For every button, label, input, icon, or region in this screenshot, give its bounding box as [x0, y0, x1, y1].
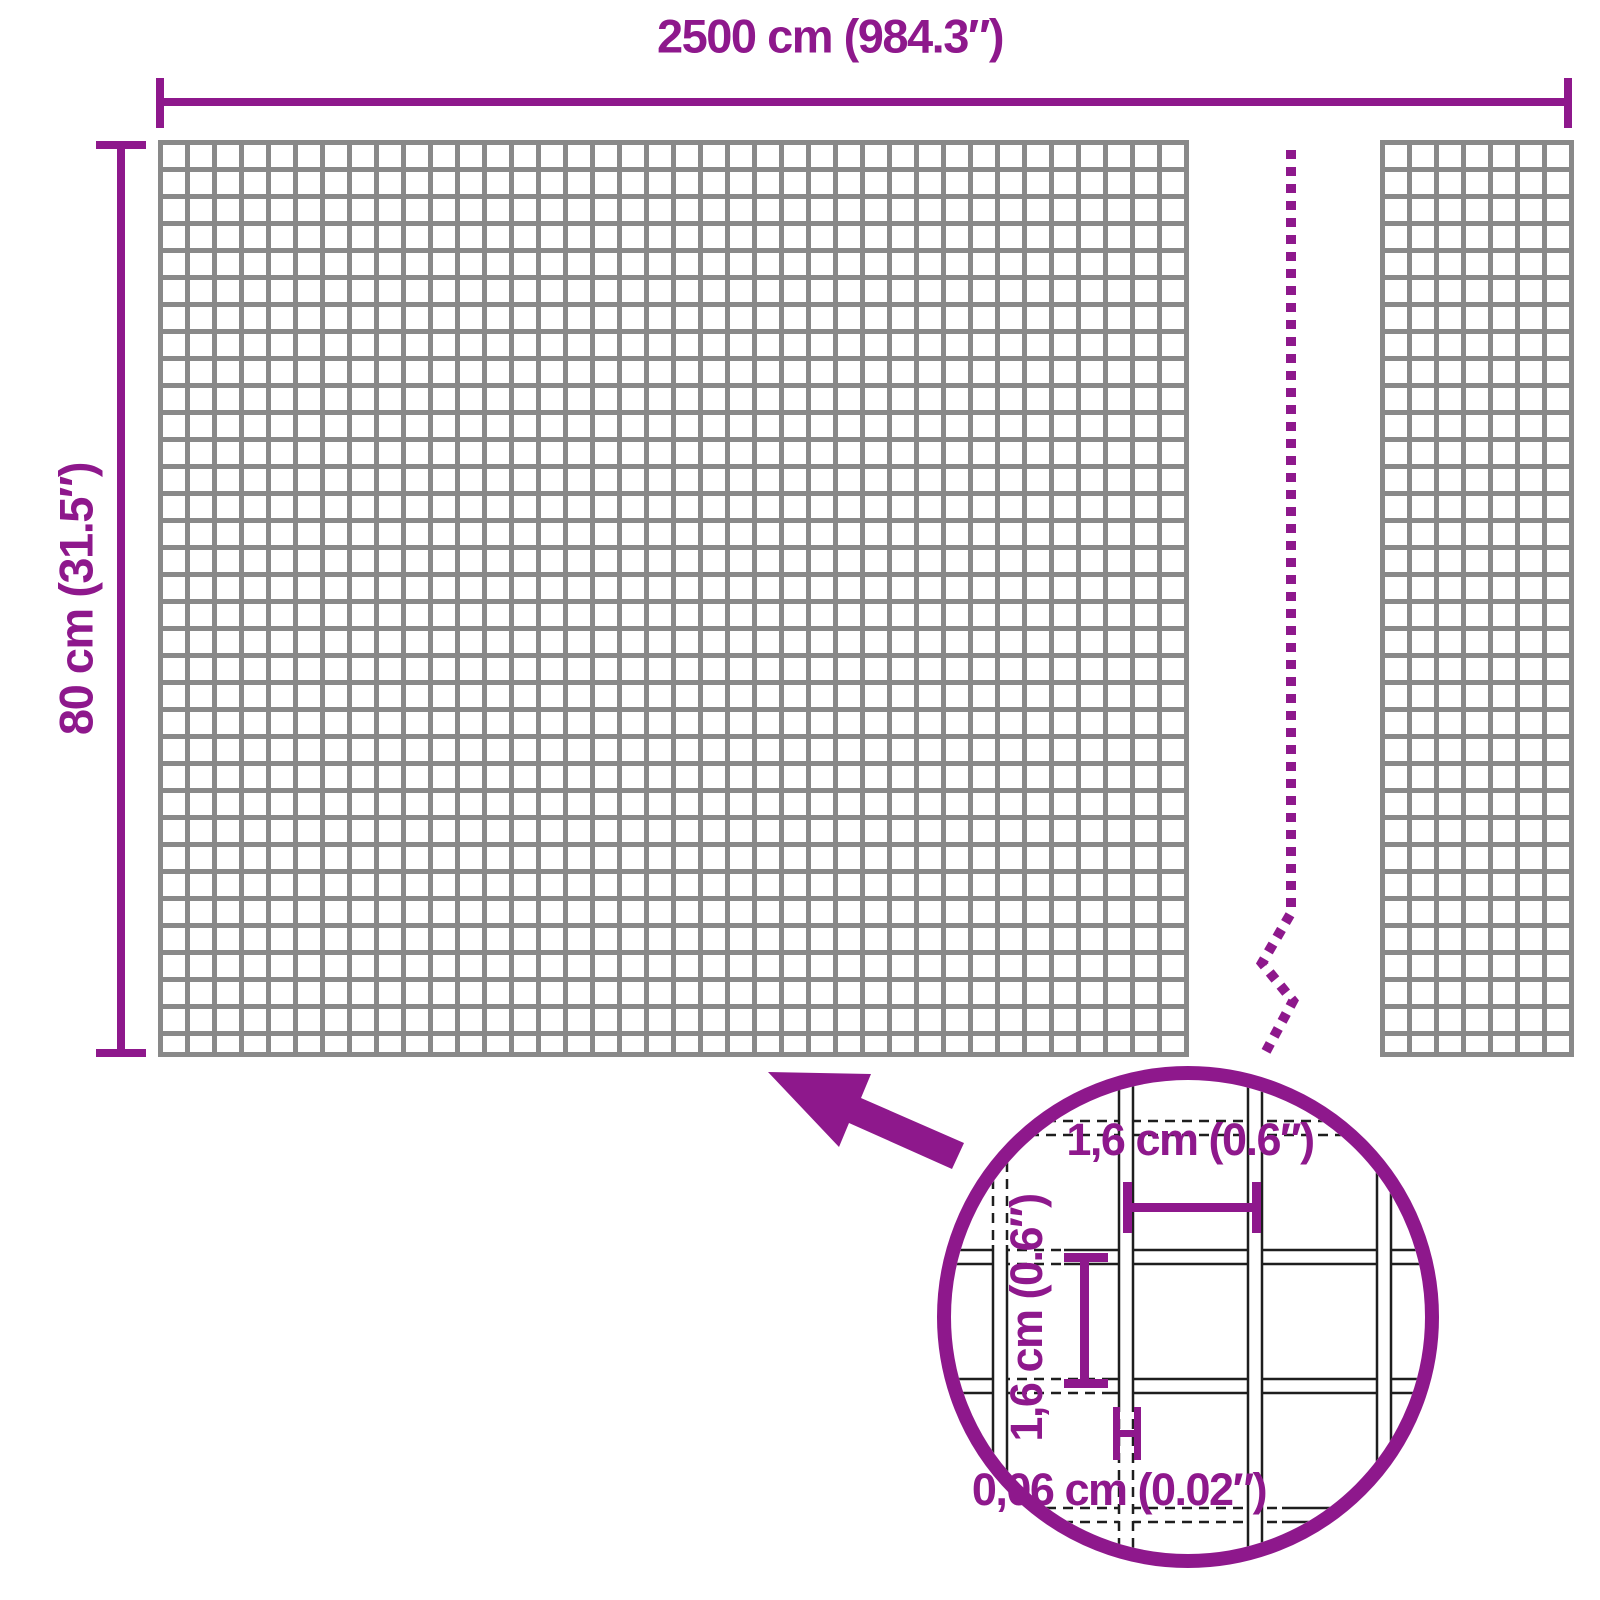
- mesh-grid-bottom-edge: [158, 1052, 1189, 1057]
- left-dimension-line: [117, 145, 125, 1055]
- diagram-canvas: [0, 0, 1600, 1600]
- mesh-opening-height-label: 1,6 cm (0.6″): [1001, 1194, 1053, 1441]
- top-dimension-line: [160, 98, 1568, 106]
- mesh-grid: [158, 140, 1189, 1057]
- mesh-opening-width-label: 1,6 cm (0.6″): [1066, 1114, 1313, 1166]
- total-height-label: 80 cm (31.5″): [49, 463, 104, 735]
- left-dimension-end-cap-top: [96, 141, 146, 149]
- zoom-arrow-icon: [768, 1072, 964, 1169]
- top-dimension-end-cap-right: [1564, 78, 1572, 128]
- mesh-dimension-diagram: 2500 cm (984.3″) 80 cm (31.5″) 1,6 cm (0…: [0, 0, 1600, 1600]
- left-dimension-end-cap-bottom: [96, 1049, 146, 1057]
- total-width-label: 2500 cm (984.3″): [657, 9, 1003, 64]
- mesh-panel-continuation: [1380, 140, 1574, 1057]
- wire-thickness-label: 0,06 cm (0.02″): [972, 1464, 1266, 1516]
- mesh-grid-continuation: [1380, 140, 1574, 1057]
- top-dimension-end-cap-left: [156, 78, 164, 128]
- left-dimension: [96, 141, 146, 1057]
- top-dimension: [156, 78, 1572, 128]
- break-line-icon: [1262, 150, 1293, 1057]
- mesh-panel: [158, 140, 1189, 1057]
- mesh-grid-continuation-bottom-edge: [1380, 1052, 1574, 1057]
